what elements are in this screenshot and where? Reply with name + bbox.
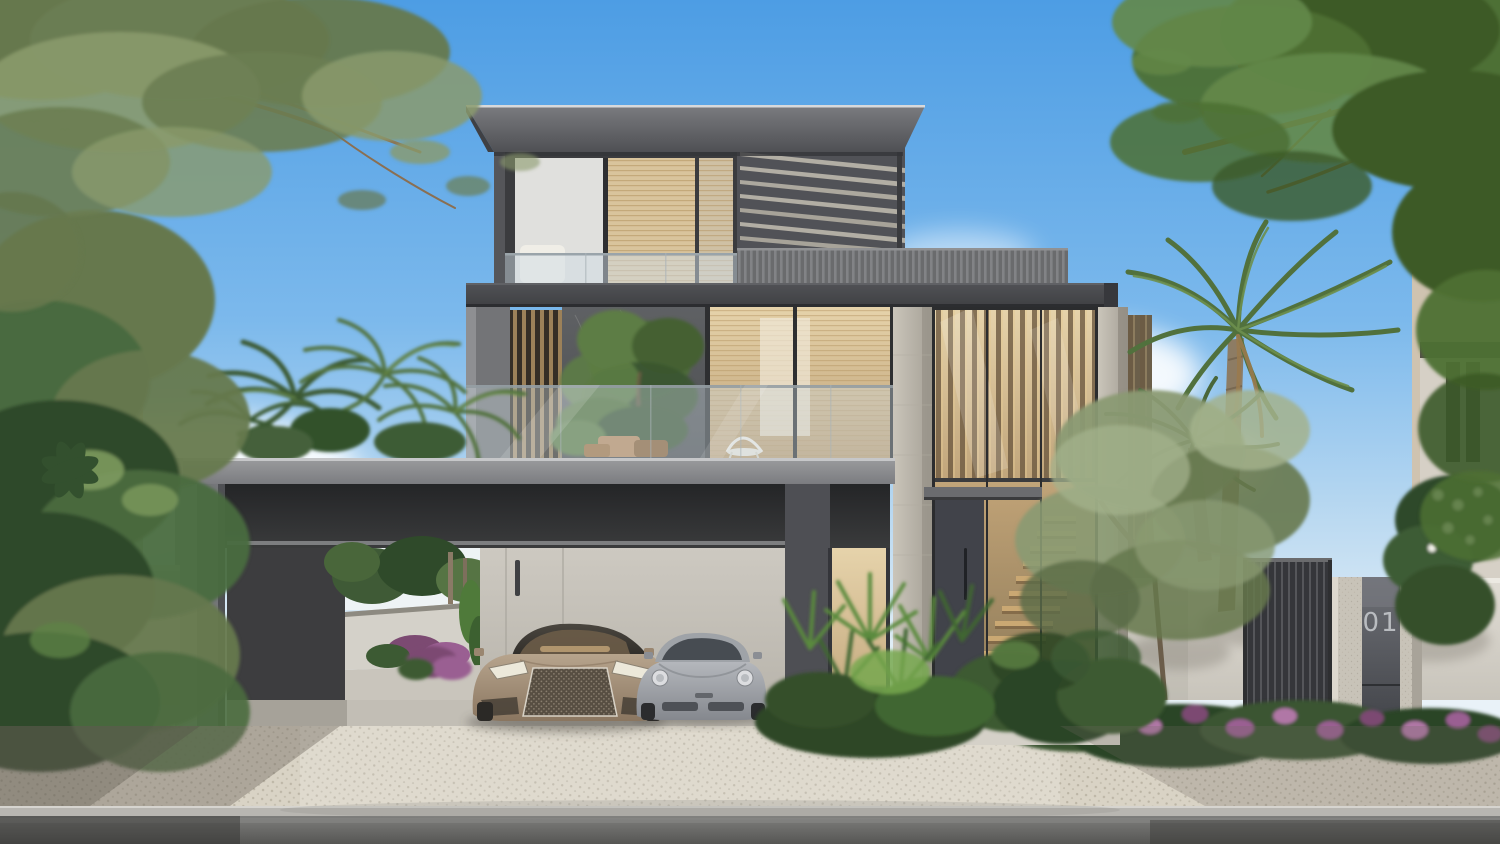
second-floor xyxy=(466,307,900,460)
carport-roof-slab xyxy=(175,458,895,484)
top-balustrade xyxy=(505,253,740,285)
villa-render: 01 xyxy=(0,0,1500,844)
ribbed-parapet xyxy=(737,248,1068,285)
address-number: 01 xyxy=(1362,608,1399,638)
roof-slab xyxy=(466,105,925,152)
door-canopy xyxy=(924,487,1042,500)
door-handle xyxy=(964,548,967,600)
garage-door-handle xyxy=(515,560,520,596)
balcony-balustrade xyxy=(466,385,900,458)
